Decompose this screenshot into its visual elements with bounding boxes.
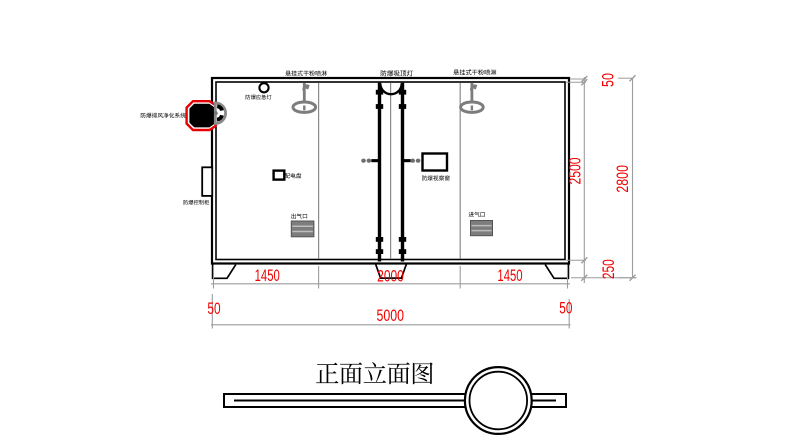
svg-text:2500: 2500 (565, 158, 584, 185)
svg-text:50: 50 (598, 73, 617, 87)
svg-text:1450: 1450 (497, 266, 522, 285)
svg-text:250: 250 (599, 259, 618, 279)
svg-text:2800: 2800 (613, 165, 632, 193)
svg-text:5000: 5000 (377, 306, 405, 325)
svg-text:50: 50 (207, 299, 220, 318)
svg-text:2000: 2000 (377, 266, 404, 285)
svg-text:50: 50 (559, 299, 572, 318)
svg-text:1450: 1450 (255, 266, 280, 285)
